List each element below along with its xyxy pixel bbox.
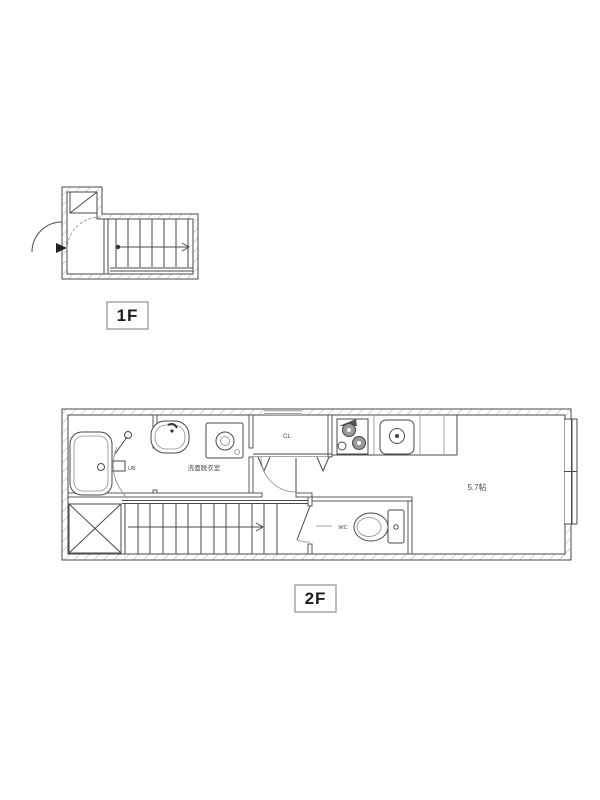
- toilet-room: WC: [297, 506, 404, 543]
- stove-icon: [337, 419, 368, 454]
- floor-label-2f-text: 2F: [305, 589, 327, 608]
- entry-door-swing-dashed: [67, 217, 100, 250]
- floorplan-page: 1F: [0, 0, 600, 800]
- top-window: [264, 410, 302, 415]
- toilet-icon: [354, 510, 404, 543]
- floorplan-1f: 1F: [32, 187, 198, 329]
- closet: CL: [253, 434, 332, 471]
- floorplan-2f: UB 洗面脱衣室 CL: [62, 409, 577, 612]
- walls-1f: [62, 187, 198, 279]
- kitchen: [332, 415, 457, 455]
- bath-label: UB: [128, 466, 136, 472]
- right-window: [564, 419, 577, 524]
- washroom-label: 洗面脱衣室: [188, 463, 221, 472]
- floor-label-2f: 2F: [295, 585, 336, 612]
- toilet-door: [297, 506, 310, 542]
- toilet-label: WC: [338, 525, 347, 531]
- bath-counter: [112, 461, 125, 471]
- floor-label-1f: 1F: [107, 302, 148, 329]
- living-room-size-label: 5.7帖: [467, 482, 486, 492]
- shower-icon: [115, 432, 132, 455]
- entry-closet: [70, 192, 97, 213]
- bathtub: [70, 432, 112, 495]
- bathroom: UB: [70, 432, 136, 498]
- closet-label: CL: [283, 434, 291, 440]
- kitchen-sink: [380, 420, 414, 454]
- staircase-2f: [122, 501, 308, 555]
- floor-label-1f-text: 1F: [117, 306, 139, 325]
- bath-door-arc: [113, 447, 126, 497]
- closet-door-mark-right: [317, 457, 329, 471]
- staircase-1f: [104, 219, 193, 274]
- stairwell-void: [69, 504, 121, 553]
- washroom: 洗面脱衣室: [151, 421, 243, 472]
- wash-basin: [151, 421, 189, 453]
- floorplan-drawing: 1F: [0, 0, 600, 800]
- stair-direction-line-2f: [128, 523, 263, 531]
- closet-door-mark-left: [258, 457, 270, 471]
- washing-machine: [206, 423, 243, 458]
- hall-door: [261, 457, 296, 492]
